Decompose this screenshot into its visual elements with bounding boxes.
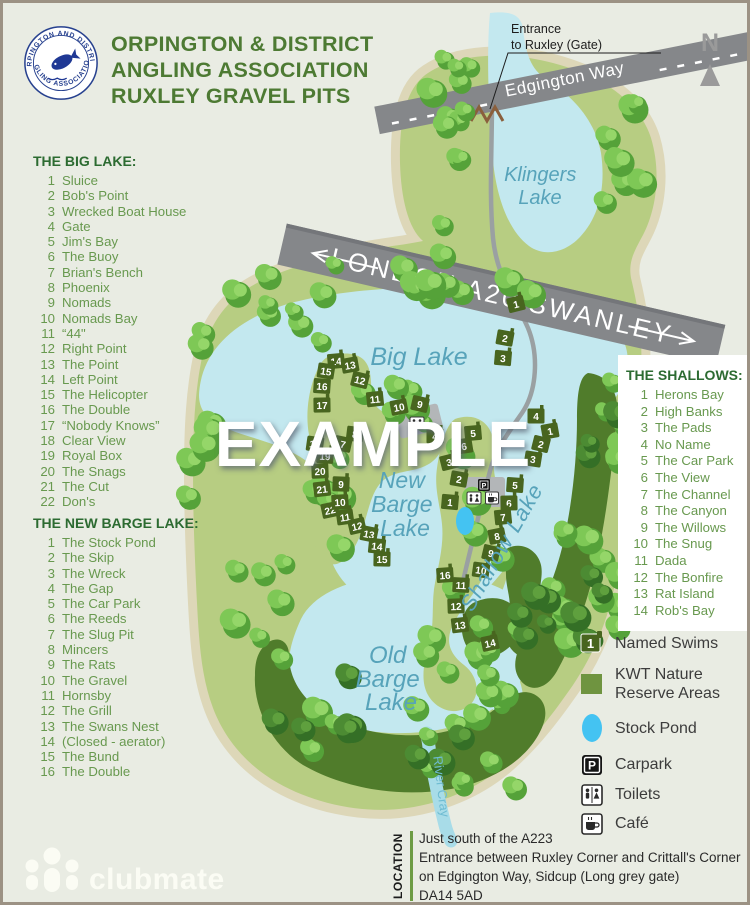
swim-list-item: 10Nomads Bay — [33, 311, 223, 326]
swim-list-item: 5Jim's Bay — [33, 234, 223, 249]
swim-list-item: 10The Gravel — [33, 673, 223, 688]
swim-list-item: 2The Skip — [33, 550, 223, 565]
svg-text:1: 1 — [587, 636, 594, 651]
entrance-label: Entrance to Ruxley (Gate) — [511, 21, 602, 53]
legend-stock-pond: Stock Pond — [579, 707, 750, 749]
swim-list-item: 2High Banks — [626, 404, 747, 421]
swim-marker-icon: 1 — [579, 630, 605, 656]
reserve-square-icon — [579, 671, 605, 697]
clubmate-people-icon — [26, 848, 79, 893]
svg-text:P: P — [588, 758, 596, 772]
stock-pond — [456, 507, 474, 535]
example-watermark: EXAMPLE — [193, 407, 553, 481]
swim-list-item: 10The Snug — [626, 536, 747, 553]
swim-list-item: 7Brian's Bench — [33, 265, 223, 280]
swim-list-item: 14Left Point — [33, 372, 223, 387]
swim-list-item: 7The Channel — [626, 487, 747, 504]
shallows-list-title: THE SHALLOWS: — [626, 367, 747, 383]
compass: N — [695, 29, 725, 86]
swim-list-item: 13The Swans Nest — [33, 719, 223, 734]
swim-list-item: 11“44" — [33, 326, 223, 341]
legend-carpark: P Carpark — [579, 749, 750, 780]
swim-list-item: 2Bob's Point — [33, 188, 223, 203]
clubmate-wordmark: clubmate — [89, 863, 225, 896]
swim-list-item: 13The Point — [33, 357, 223, 372]
new-barge-swim-list: THE NEW BARGE LAKE: 1The Stock Pond2The … — [33, 515, 223, 780]
swim-list-item: 6The View — [626, 470, 747, 487]
swim-list-item: 5The Car Park — [33, 596, 223, 611]
swim-list-item: 15The Bund — [33, 749, 223, 764]
swim-marker-number: 13 — [454, 620, 467, 632]
map-poster: LONDON A20 SWANLEY Edgington Way P 12341… — [0, 0, 750, 905]
swim-list-item: 1Herons Bay — [626, 387, 747, 404]
swim-marker-number: 10 — [334, 498, 346, 510]
big-lake-list-title: THE BIG LAKE: — [33, 153, 223, 169]
swim-list-item: 13Rat Island — [626, 586, 747, 603]
swim-list-item: 11Dada — [626, 553, 747, 570]
map-legend: 1 Named Swims KWT Nature Reserve Areas S… — [579, 625, 750, 838]
clubmate-logo: clubmate — [19, 841, 249, 899]
new-barge-list-title: THE NEW BARGE LAKE: — [33, 515, 223, 531]
swim-list-item: 3The Pads — [626, 420, 747, 437]
page-title: ORPINGTON & DISTRICT ANGLING ASSOCIATION… — [111, 31, 373, 109]
compass-n-label: N — [695, 29, 725, 58]
swim-list-item: 4Gate — [33, 219, 223, 234]
swim-marker-number: 16 — [316, 382, 328, 394]
swim-list-item: 7The Slug Pit — [33, 627, 223, 642]
location-text: Just south of the A223 Entrance between … — [419, 829, 740, 905]
swim-list-item: 4The Gap — [33, 581, 223, 596]
swim-marker-number: 15 — [376, 555, 388, 566]
swim-list-item: 8The Canyon — [626, 503, 747, 520]
swim-list-item: 16The Double — [33, 764, 223, 779]
tree-icon — [502, 776, 527, 800]
legend-named-swims: 1 Named Swims — [579, 625, 750, 661]
svg-text:P: P — [482, 483, 487, 490]
legend-kwt-reserve: KWT Nature Reserve Areas — [579, 661, 750, 707]
swim-list-item: 12Right Point — [33, 341, 223, 356]
swim-list-item: 22Don's — [33, 494, 223, 509]
swim-list-item: 21The Cut — [33, 479, 223, 494]
swim-list-item: 4No Name — [626, 437, 747, 454]
swim-list-item: 1The Stock Pond — [33, 535, 223, 550]
header: ORPINGTON AND DISTRICT ANGLING ASSOCIATI… — [23, 25, 373, 109]
swim-list-item: 5The Car Park — [626, 453, 747, 470]
swim-list-item: 12The Grill — [33, 703, 223, 718]
swim-list-item: 9The Willows — [626, 520, 747, 537]
swim-list-item: 8Mincers — [33, 642, 223, 657]
shallows-swim-list: THE SHALLOWS: 1Herons Bay2High Banks3The… — [618, 355, 750, 631]
toilets-icon — [467, 492, 481, 504]
swim-list-item: 9Nomads — [33, 295, 223, 310]
carpark-icon: P — [579, 754, 605, 776]
compass-arrow-icon — [700, 64, 720, 86]
stock-pond-icon — [579, 711, 605, 745]
swim-list-item: 3The Wreck — [33, 566, 223, 581]
swim-list-item: 6The Buoy — [33, 249, 223, 264]
swim-marker-number: 15 — [319, 366, 332, 379]
swim-list-item: 14(Closed - aerator) — [33, 734, 223, 749]
swim-list-item: 12The Bonfire — [626, 570, 747, 587]
swim-list-item: 3Wrecked Boat House — [33, 204, 223, 219]
toilets-icon — [579, 784, 605, 806]
legend-toilets: Toilets — [579, 780, 750, 809]
swim-list-item: 6The Reeds — [33, 611, 223, 626]
swim-list-item: 9The Rats — [33, 657, 223, 672]
swim-marker-number: 9 — [338, 480, 344, 491]
swim-marker-number: 16 — [439, 571, 451, 583]
club-badge-logo: ORPINGTON AND DISTRICT ANGLING ASSOCIATI… — [23, 25, 99, 101]
location-divider — [410, 831, 413, 901]
location-label: LOCATION — [391, 831, 405, 901]
swim-list-item: 14Rob's Bay — [626, 603, 747, 620]
swim-marker-number: 11 — [369, 394, 381, 406]
swim-marker-number: 21 — [316, 484, 329, 496]
swim-list-item: 15The Helicopter — [33, 387, 223, 402]
swim-list-item: 8Phoenix — [33, 280, 223, 295]
cafe-icon — [486, 492, 499, 504]
swim-list-item: 11Hornsby — [33, 688, 223, 703]
swim-list-item: 1Sluice — [33, 173, 223, 188]
big-lake-label: Big Lake — [370, 343, 467, 371]
